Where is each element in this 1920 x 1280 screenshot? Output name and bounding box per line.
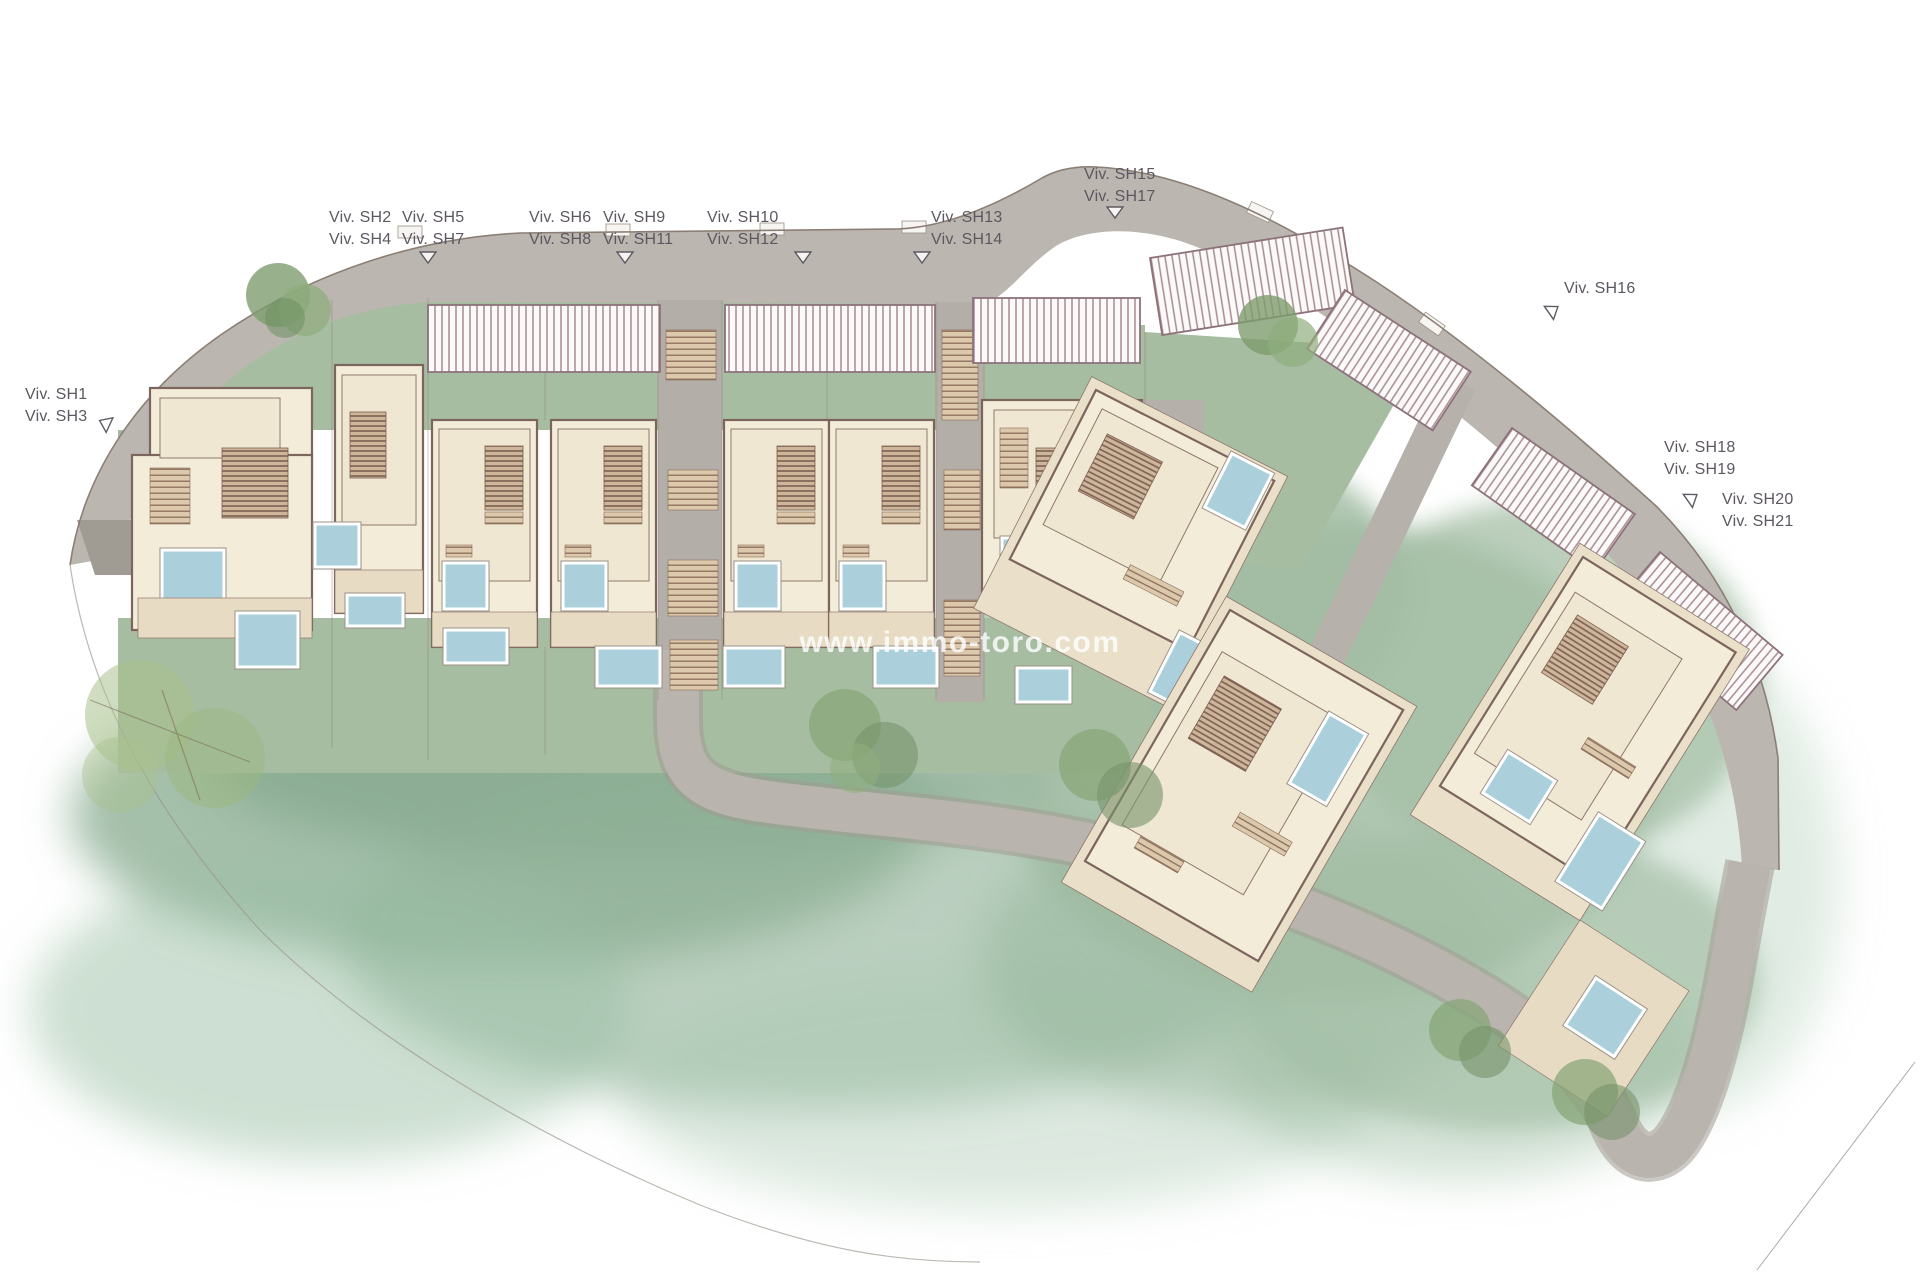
unit-label-viv-sh10-sh12: Viv. SH10Viv. SH12 xyxy=(707,207,778,251)
site-plan-image: Viv. SH1Viv. SH3 Viv. SH2Viv. SH4 Viv. S… xyxy=(0,0,1920,1280)
pool xyxy=(723,646,785,688)
pool xyxy=(443,628,509,665)
unit-label-line: Viv. SH18 xyxy=(1664,437,1735,459)
unit-label-line: Viv. SH17 xyxy=(1084,186,1155,208)
pool xyxy=(345,593,405,628)
unit-label-viv-sh5-sh7: Viv. SH5Viv. SH7 xyxy=(402,207,464,251)
unit-label-viv-sh2-sh4: Viv. SH2Viv. SH4 xyxy=(329,207,391,251)
unit-label-line: Viv. SH1 xyxy=(25,384,87,406)
unit-label-line: Viv. SH21 xyxy=(1722,511,1793,533)
unit-label-line: Viv. SH5 xyxy=(402,207,464,229)
unit-label-line: Viv. SH2 xyxy=(329,207,391,229)
marker-side-icon xyxy=(96,413,113,432)
unit-label-line: Viv. SH14 xyxy=(931,229,1002,251)
building-sh1-sh3 xyxy=(132,388,312,638)
unit-label-viv-sh13-sh14: Viv. SH13Viv. SH14 xyxy=(931,207,1002,251)
unit-label-viv-sh18-sh19: Viv. SH18Viv. SH19 xyxy=(1664,437,1735,481)
unit-label-viv-sh15-sh17: Viv. SH15Viv. SH17 xyxy=(1084,164,1155,208)
pool xyxy=(1015,666,1072,704)
unit-label-line: Viv. SH3 xyxy=(25,406,87,428)
unit-label-line: Viv. SH20 xyxy=(1722,489,1793,511)
building-sh9-sh11 xyxy=(724,420,829,647)
marker-side-icon xyxy=(1683,488,1701,507)
unit-label-line: Viv. SH10 xyxy=(707,207,778,229)
unit-label-line: Viv. SH7 xyxy=(402,229,464,251)
unit-label-line: Viv. SH13 xyxy=(931,207,1002,229)
unit-label-viv-sh20-sh21: Viv. SH20Viv. SH21 xyxy=(1722,489,1793,533)
unit-label-line: Viv. SH12 xyxy=(707,229,778,251)
building-sh6-sh8 xyxy=(551,420,656,647)
marker-side-icon xyxy=(1544,300,1562,319)
unit-label-line: Viv. SH11 xyxy=(603,229,673,251)
pool xyxy=(235,611,300,669)
unit-label-line: Viv. SH8 xyxy=(529,229,591,251)
unit-label-line: Viv. SH19 xyxy=(1664,459,1735,481)
unit-label-viv-sh6-sh8: Viv. SH6Viv. SH8 xyxy=(529,207,591,251)
building-sh5-sh7 xyxy=(432,420,537,647)
unit-label-line: Viv. SH4 xyxy=(329,229,391,251)
building-sh10-sh12 xyxy=(829,420,934,647)
watermark-text: www.immo-toro.com xyxy=(799,626,1120,660)
unit-label-viv-sh16: Viv. SH16 xyxy=(1564,278,1635,300)
unit-label-line: Viv. SH9 xyxy=(603,207,673,229)
unit-label-line: Viv. SH16 xyxy=(1564,278,1635,300)
pool xyxy=(595,646,662,688)
unit-label-line: Viv. SH6 xyxy=(529,207,591,229)
unit-label-viv-sh1-sh3: Viv. SH1Viv. SH3 xyxy=(25,384,87,428)
unit-label-viv-sh9-sh11: Viv. SH9Viv. SH11 xyxy=(603,207,673,251)
unit-label-line: Viv. SH15 xyxy=(1084,164,1155,186)
